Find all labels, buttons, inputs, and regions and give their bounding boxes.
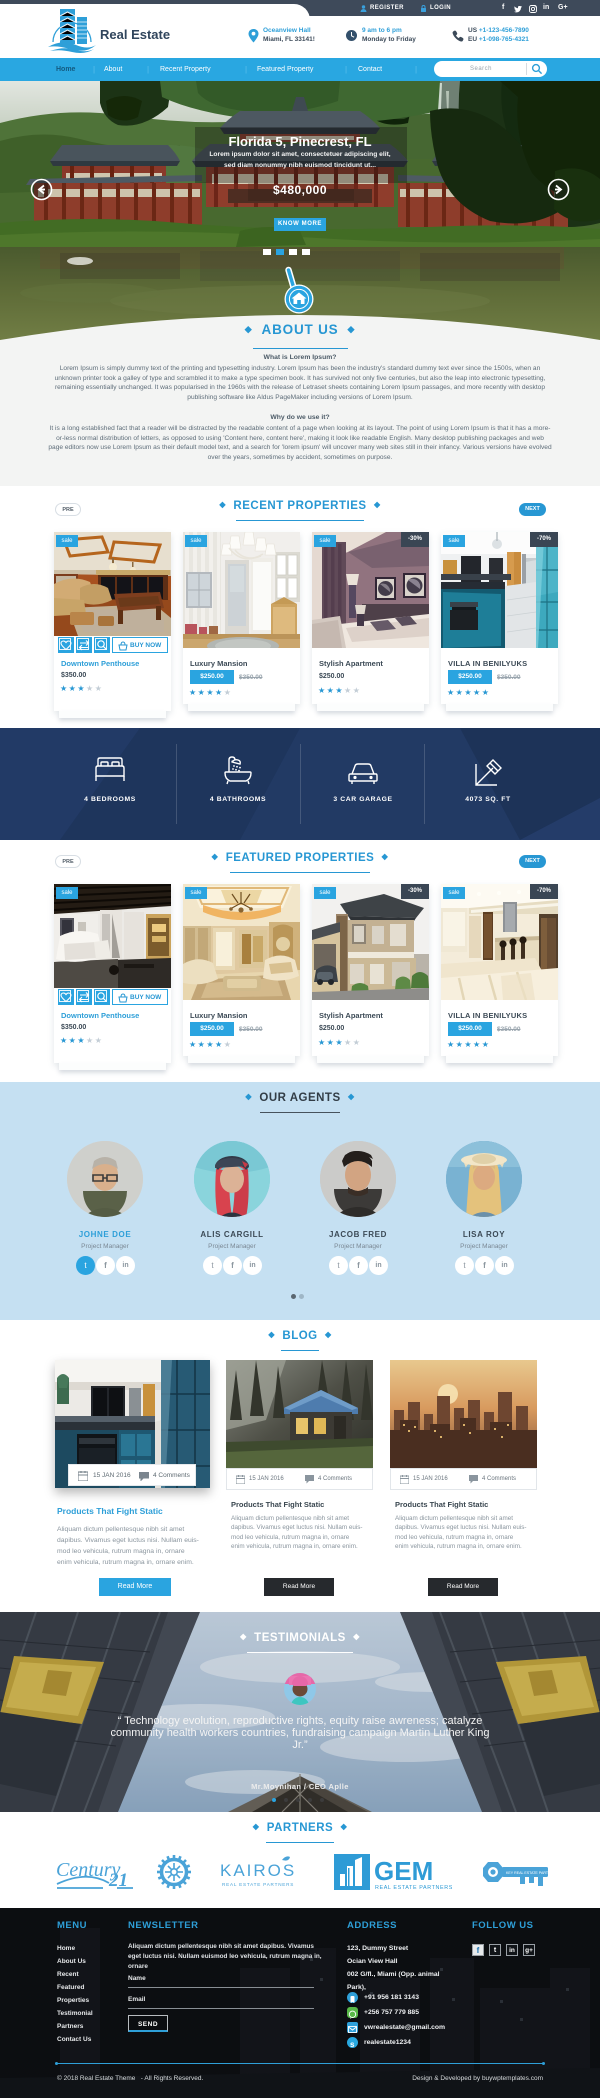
svg-text:s: s bbox=[350, 2040, 355, 2049]
svg-text:KAIROS: KAIROS bbox=[220, 1861, 296, 1880]
svg-text:KEY REAL ESTATE PARTNERS: KEY REAL ESTATE PARTNERS bbox=[506, 1871, 550, 1875]
svg-text:REAL ESTATE PARTNERS: REAL ESTATE PARTNERS bbox=[222, 1882, 294, 1887]
svg-text:GEM: GEM bbox=[374, 1856, 433, 1886]
svg-text:REAL ESTATE PARTNERS: REAL ESTATE PARTNERS bbox=[375, 1885, 452, 1891]
